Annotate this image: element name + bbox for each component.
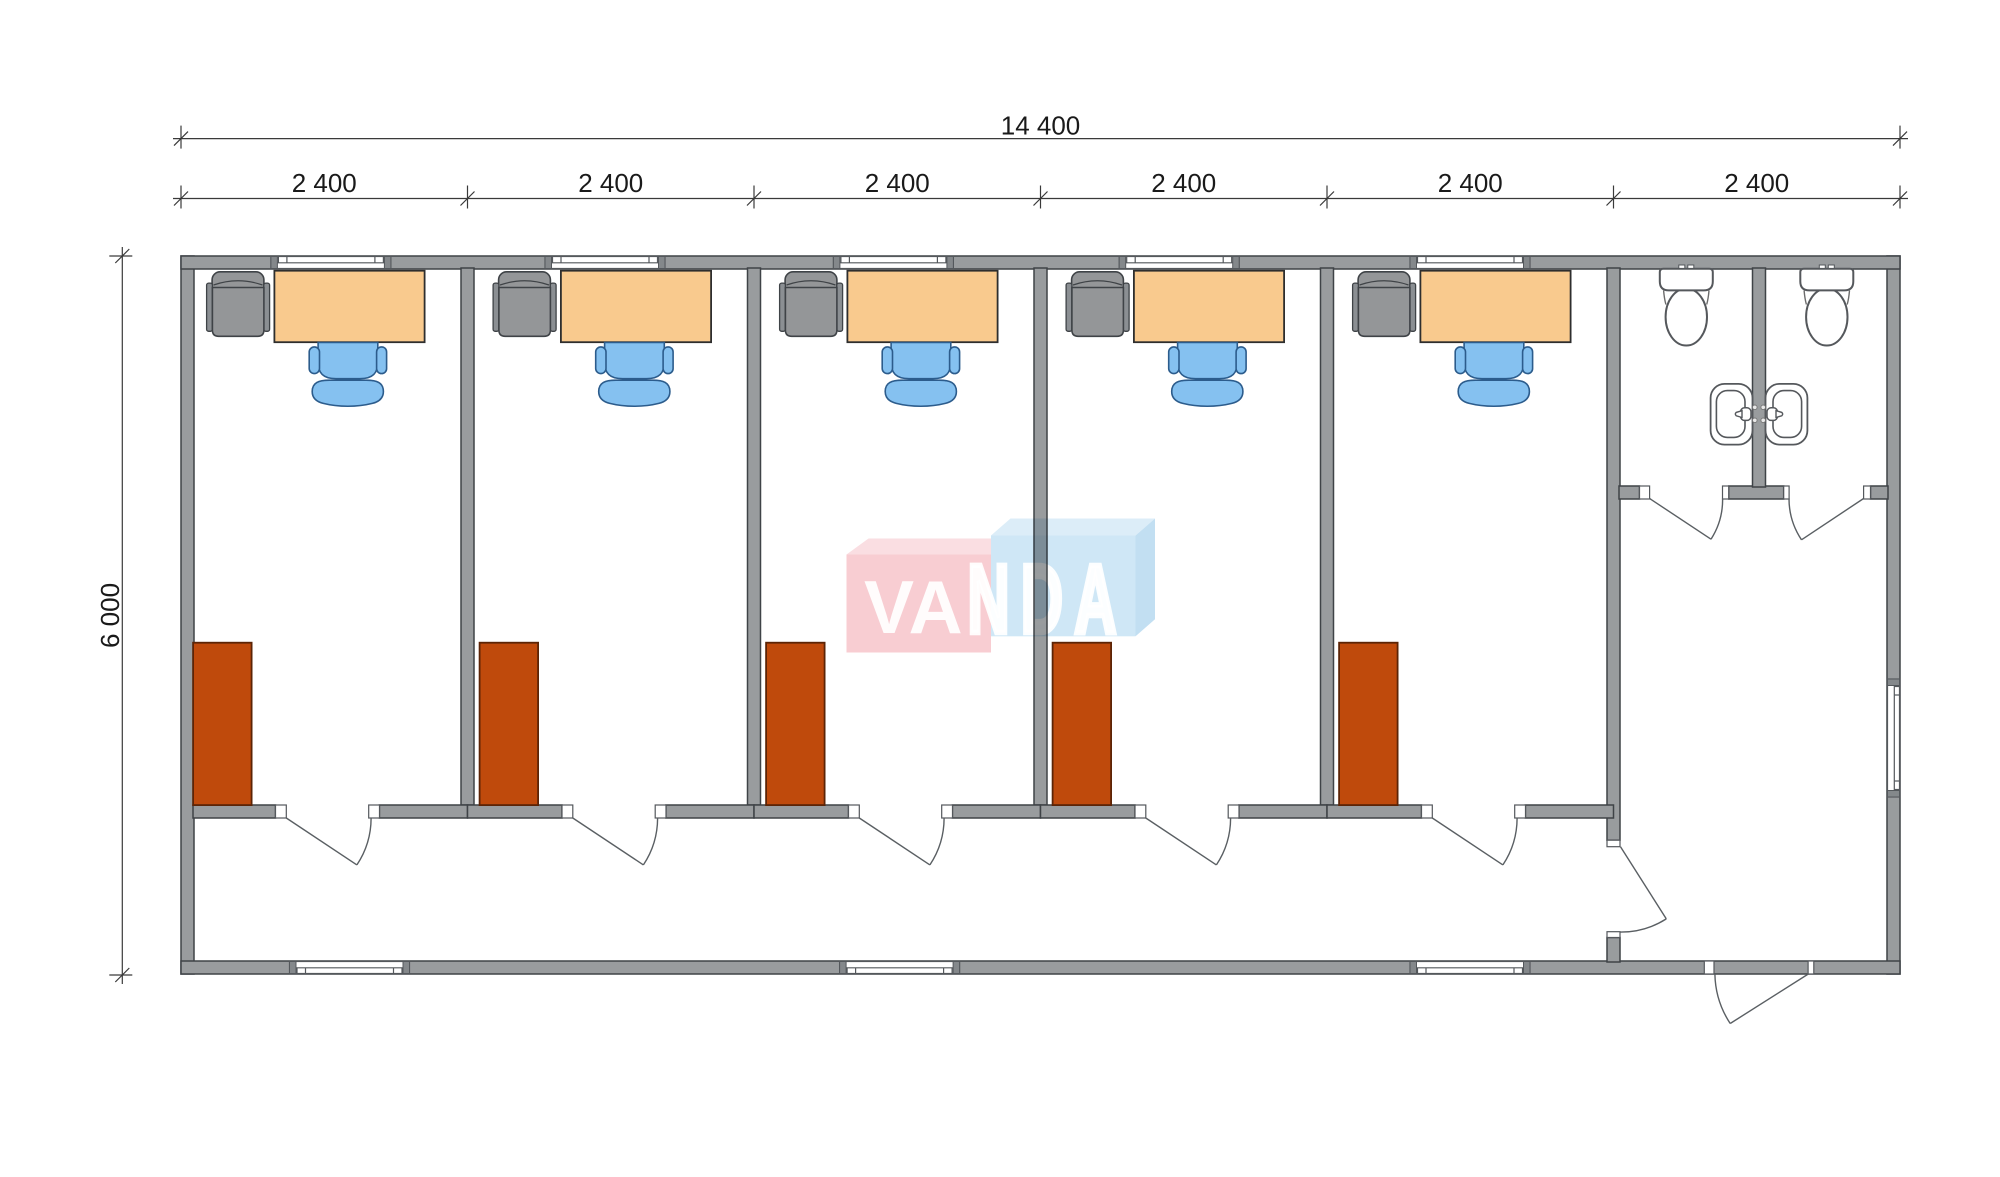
svg-text:NDA: NDA	[968, 545, 1128, 653]
svg-text:6 000: 6 000	[95, 583, 125, 648]
svg-text:2 400: 2 400	[292, 168, 357, 198]
svg-text:2 400: 2 400	[1151, 168, 1216, 198]
svg-text:2 400: 2 400	[1724, 168, 1789, 198]
svg-text:VA: VA	[864, 565, 963, 649]
svg-text:2 400: 2 400	[1438, 168, 1503, 198]
svg-text:2 400: 2 400	[578, 168, 643, 198]
svg-text:14 400: 14 400	[1001, 111, 1081, 141]
svg-text:2 400: 2 400	[865, 168, 930, 198]
